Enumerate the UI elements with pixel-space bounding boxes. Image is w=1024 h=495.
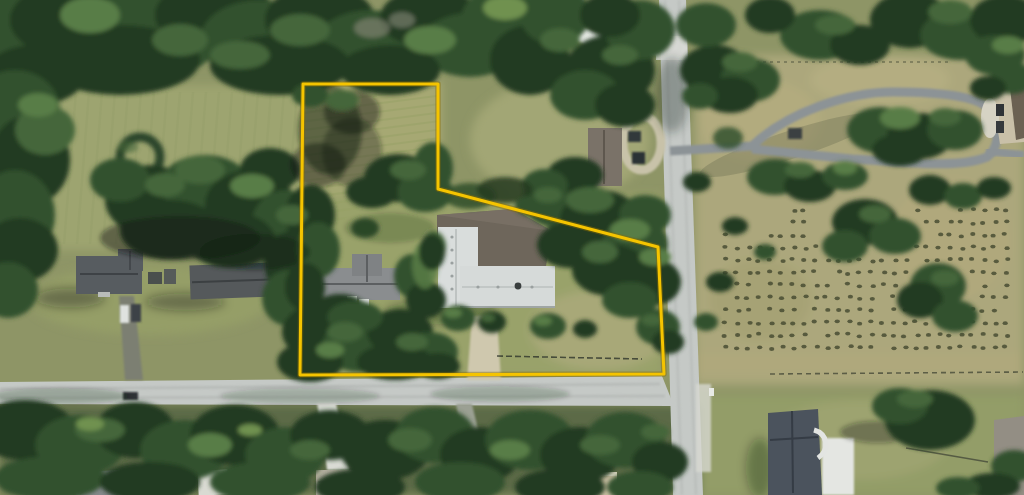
shed-2 — [164, 269, 176, 284]
car-dark-drive1 — [131, 304, 141, 322]
aerial-map — [0, 0, 1024, 495]
chimney — [515, 283, 522, 290]
mailbox-post-2 — [709, 388, 714, 396]
car-circular-1 — [628, 131, 641, 142]
driveway-asphalt-spur — [986, 151, 1024, 155]
car-dark-re1 — [996, 104, 1004, 116]
shed-1 — [148, 272, 162, 284]
gravel-shoulder — [696, 384, 711, 472]
car-dark-re2 — [996, 121, 1004, 133]
bottom-right-house — [768, 409, 826, 495]
car-on-loop — [788, 128, 802, 139]
car-circular-2 — [632, 152, 645, 164]
far-left-house — [76, 249, 143, 297]
main-house — [437, 209, 555, 308]
car-white-drive1 — [120, 305, 129, 323]
